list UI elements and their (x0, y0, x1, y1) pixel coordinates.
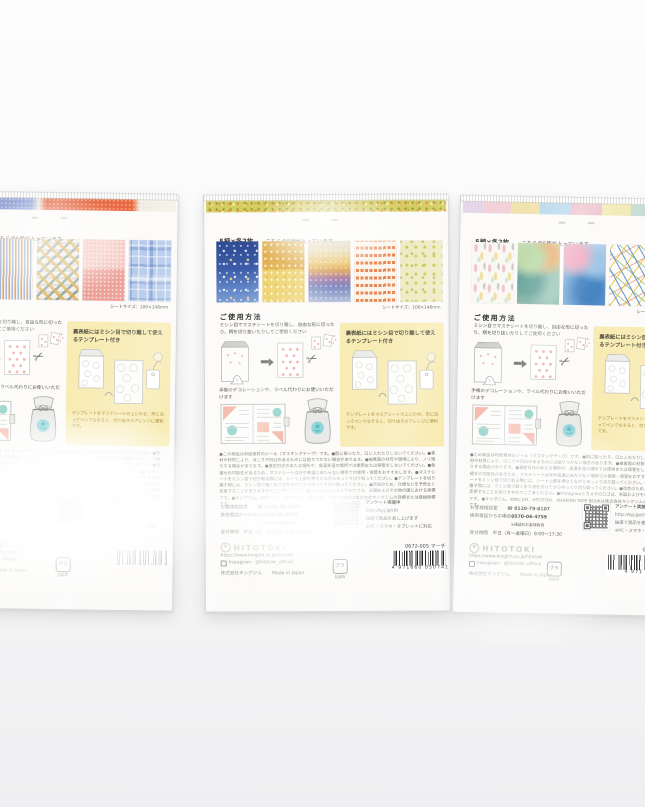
arrow-icon (261, 360, 269, 363)
swatch-gold-floral (262, 241, 304, 302)
survey-note: ※PC・スマホ・タブレットに対応 (366, 523, 448, 531)
survey-info: アンケート実施中 http://kyj.jp/r/h 抽選で賞品を差し上げます … (615, 504, 645, 537)
swatch-confetti-dashes (609, 245, 645, 307)
product-block: プラ 包装袋 (115, 549, 171, 567)
arrow-icon (514, 362, 522, 365)
barcode: 4 971660 050741 (392, 549, 448, 571)
barcode-bars (608, 555, 645, 571)
product-block: 0672-0 プラ 包装袋 4 971 (606, 554, 645, 577)
template-title: 裏表紙にはミシン目で切り離して使えるテンプレート付き (599, 333, 645, 352)
swatch-pastel-strokes (471, 242, 514, 304)
contact-info: お客様相談室☎ 0120-79-8107 携帯電話からの場合0570-06-47… (469, 505, 582, 540)
survey-info: アンケート実施中 http://kyj.jp/r/h 抽選で賞品を差し上げます … (89, 499, 171, 532)
recycle-mark: プラ 包装袋 (332, 552, 348, 580)
product-block: 0672-005 マーチ プラ 包装袋 4 971660 050741 (392, 549, 448, 571)
usage-heading: ご使用方法 (220, 312, 263, 322)
pattern-swatches (216, 240, 442, 302)
survey-info: アンケート実施中 http://kyj.jp/r/h 抽選で賞品を差し上げます … (365, 499, 447, 531)
hitotoki-logo-icon (221, 542, 231, 552)
qr-code (333, 500, 360, 527)
package-back-cover: 5柄×各2枚 こちらの5柄が入っています シートサイズ：100×148mm ご使… (206, 197, 448, 594)
toll-note: ※通話料お客様負担 (0, 517, 56, 525)
product-code: 0672-005 マーチ (405, 542, 446, 549)
gift-bag-illustration (26, 393, 60, 445)
gift-bag-illustration (552, 398, 586, 451)
template-feature-box: 裏表紙にはミシン目で切り離して使えるテンプレート付き テンプレートをマステシート… (340, 322, 445, 446)
package-back-cover: 5柄×各2枚 こちらの5柄が入っています シートサイズ：100×148mm ご使… (0, 194, 176, 593)
sheet-size-label: シートサイズ：100×148mm (110, 304, 168, 311)
template-title: 裏表紙にはミシン目で切り離して使えるテンプレート付き (346, 330, 438, 347)
barcode-number: 4 971 (606, 570, 645, 576)
package-right: 5柄×各2枚 こちらの5柄が入っています シートサイズ：100×148mm ご使… (452, 195, 645, 618)
pattern-swatches (471, 242, 645, 307)
survey-note: ※PC・スマホ・タブレットに対応 (615, 527, 645, 536)
notebook-illustration (468, 400, 543, 449)
sheet-size-label: シートサイズ：100×148mm (382, 305, 440, 311)
template-illustration (598, 353, 645, 415)
swatch-watercolor-blue (563, 244, 606, 306)
notebook-illustration (217, 399, 291, 447)
qr-code (583, 503, 611, 531)
template-illustration (346, 349, 438, 409)
qr-code (57, 498, 84, 525)
template-caption: テンプレートをマステシートの上にのせ、形に沿ってペンでなぞると、切り抜きのアレン… (346, 411, 438, 432)
swatch-sunset-gradient (308, 241, 350, 302)
toll-note: ※通話料お客様負担 (262, 520, 333, 527)
swatch-mosaic-confetti (36, 239, 79, 301)
contact-info: お客様相談室☎ 0120-79-8107 携帯電話からの場合0570-06-47… (0, 500, 57, 534)
template-caption: テンプレートをマステシートの上にのせ、形に沿ってペンでなぞると、切り抜きのアレン… (72, 410, 164, 431)
reception-hours: 受付時間 平日（月～金曜日）9:00～17:30 (0, 525, 56, 535)
hitotoki-logo: HITOTOKI (221, 542, 351, 553)
template-title: 裏表紙にはミシン目で切り離して使えるテンプレート付き (73, 328, 165, 346)
phone-icon: ☎ (257, 505, 263, 510)
cut-pieces-illustration (311, 332, 337, 350)
examples-illustration (217, 395, 339, 450)
template-illustration (72, 348, 165, 409)
pattern-swatches (0, 237, 171, 301)
examples-illustration (468, 396, 591, 452)
cut-pieces-illustration (564, 335, 590, 353)
recycle-mark: プラ 包装袋 (546, 554, 563, 582)
usage-illustration: ✂ (0, 334, 64, 384)
reception-hours: 受付時間 平日（月～金曜日）9:00～17:30 (469, 530, 581, 540)
swatch-blue-plaid (128, 240, 171, 302)
front-cover-edge (206, 199, 446, 212)
instagram-line: Instagram：@hitotoki_official (469, 560, 599, 570)
recycle-mark: プラ 包装袋 (55, 550, 71, 578)
toll-note: ※通話料お客様負担 (511, 522, 582, 530)
brand-block: HITOTOKI https://www.kingjim.co.jp/hitot… (469, 543, 600, 579)
template-caption: テンプレートをマステシートの上にのせ、形に沿ってペンでなぞると、切り抜きのアレン… (597, 415, 645, 437)
scissors-icon: ✂ (304, 350, 320, 368)
barcode-bars (117, 550, 169, 566)
swatch-chartreuse-floral (400, 240, 442, 301)
sleeve-seal (203, 193, 449, 201)
cut-pieces-illustration (38, 330, 64, 348)
swatch-orange-rows (354, 241, 396, 302)
swatch-watercolor-green (517, 243, 560, 305)
cover-marks (302, 219, 338, 221)
phone-icon: ☎ (507, 507, 513, 512)
barcode (115, 549, 171, 567)
usage-illustration: ✂ (219, 338, 337, 387)
cover-marks (558, 222, 594, 225)
scissors-icon: ✂ (31, 348, 47, 366)
dot-sheet-illustration (3, 339, 31, 375)
instagram-icon (221, 561, 227, 567)
hitotoki-logo-icon (469, 543, 479, 553)
peel-book-illustration (219, 340, 255, 384)
company-line: 株式会社キングジムMade in Japan (469, 571, 599, 579)
swatch-starry-night (216, 241, 258, 302)
contact-info: お客様相談室☎ 0120-79-8107 携帯電話からの場合0570-06-47… (220, 504, 332, 537)
usage-illustration: ✂ (471, 339, 590, 389)
barcode-bars (394, 550, 446, 565)
survey-note: ※PC・スマホ・タブレットに対応 (89, 522, 171, 531)
examples-illustration (0, 391, 65, 447)
reception-hours: 受付時間 平日（月～金曜日）9:00～17:30 (221, 529, 333, 538)
sheet-size-label: シートサイズ：100×148mm (636, 309, 645, 316)
barcode: 4 971 (606, 554, 645, 577)
dot-sheet-illustration (277, 342, 304, 378)
template-feature-box: 裏表紙にはミシン目で切り離して使えるテンプレート付き テンプレートをマステシート… (65, 321, 171, 446)
package-middle: 5柄×各2枚 こちらの5柄が入っています シートサイズ：100×148mm ご使… (203, 193, 451, 612)
product-photo: 5柄×各2枚 こちらの5柄が入っています シートサイズ：100×148mm ご使… (0, 0, 645, 807)
instagram-icon (469, 561, 475, 567)
swatch-pink-speckle (82, 239, 125, 301)
package-left: 5柄×各2枚 こちらの5柄が入っています シートサイズ：100×148mm ご使… (0, 190, 179, 611)
gift-bag-illustration (301, 395, 334, 447)
notebook-illustration (0, 395, 17, 444)
template-feature-box: 裏表紙にはミシン目で切り離して使えるテンプレート付き テンプレートをマステシート… (591, 326, 645, 452)
peel-book-illustration (471, 341, 508, 386)
swatch-stripes (0, 238, 33, 300)
package-back-cover: 5柄×各2枚 こちらの5柄が入っています シートサイズ：100×148mm ご使… (455, 199, 645, 600)
dot-sheet-illustration (529, 344, 557, 381)
barcode-number: 4 971660 050741 (392, 565, 448, 570)
cover-marks (32, 217, 68, 220)
scissors-icon: ✂ (557, 353, 573, 371)
